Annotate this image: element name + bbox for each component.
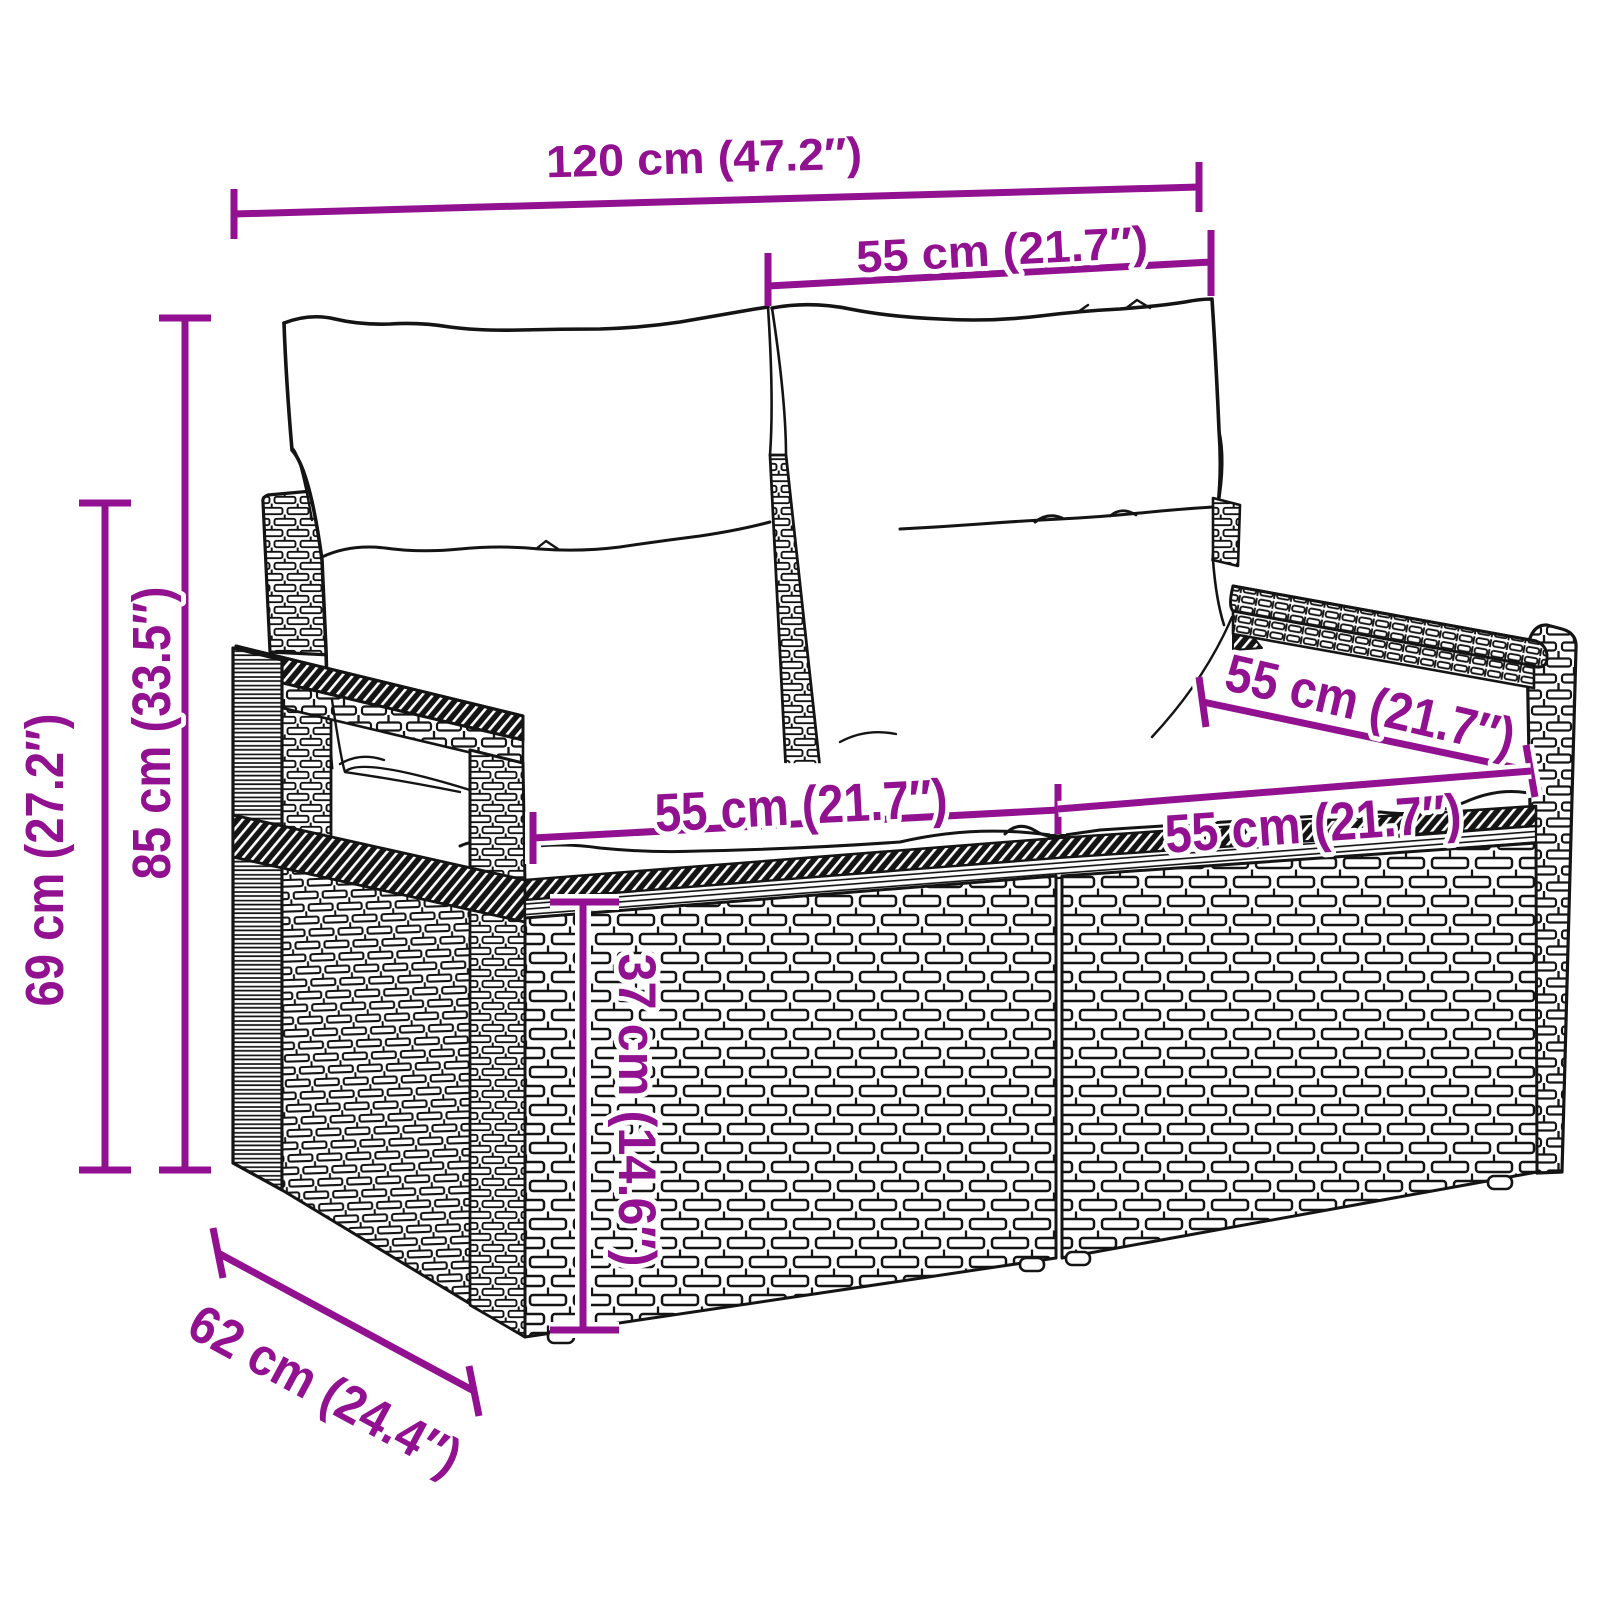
svg-text:85 cm (33.5″): 85 cm (33.5″)	[122, 587, 182, 880]
svg-text:69 cm (27.2″): 69 cm (27.2″)	[15, 714, 75, 1007]
svg-text:120 cm (47.2″): 120 cm (47.2″)	[545, 128, 862, 188]
svg-text:37 cm (14.6″): 37 cm (14.6″)	[607, 954, 666, 1267]
